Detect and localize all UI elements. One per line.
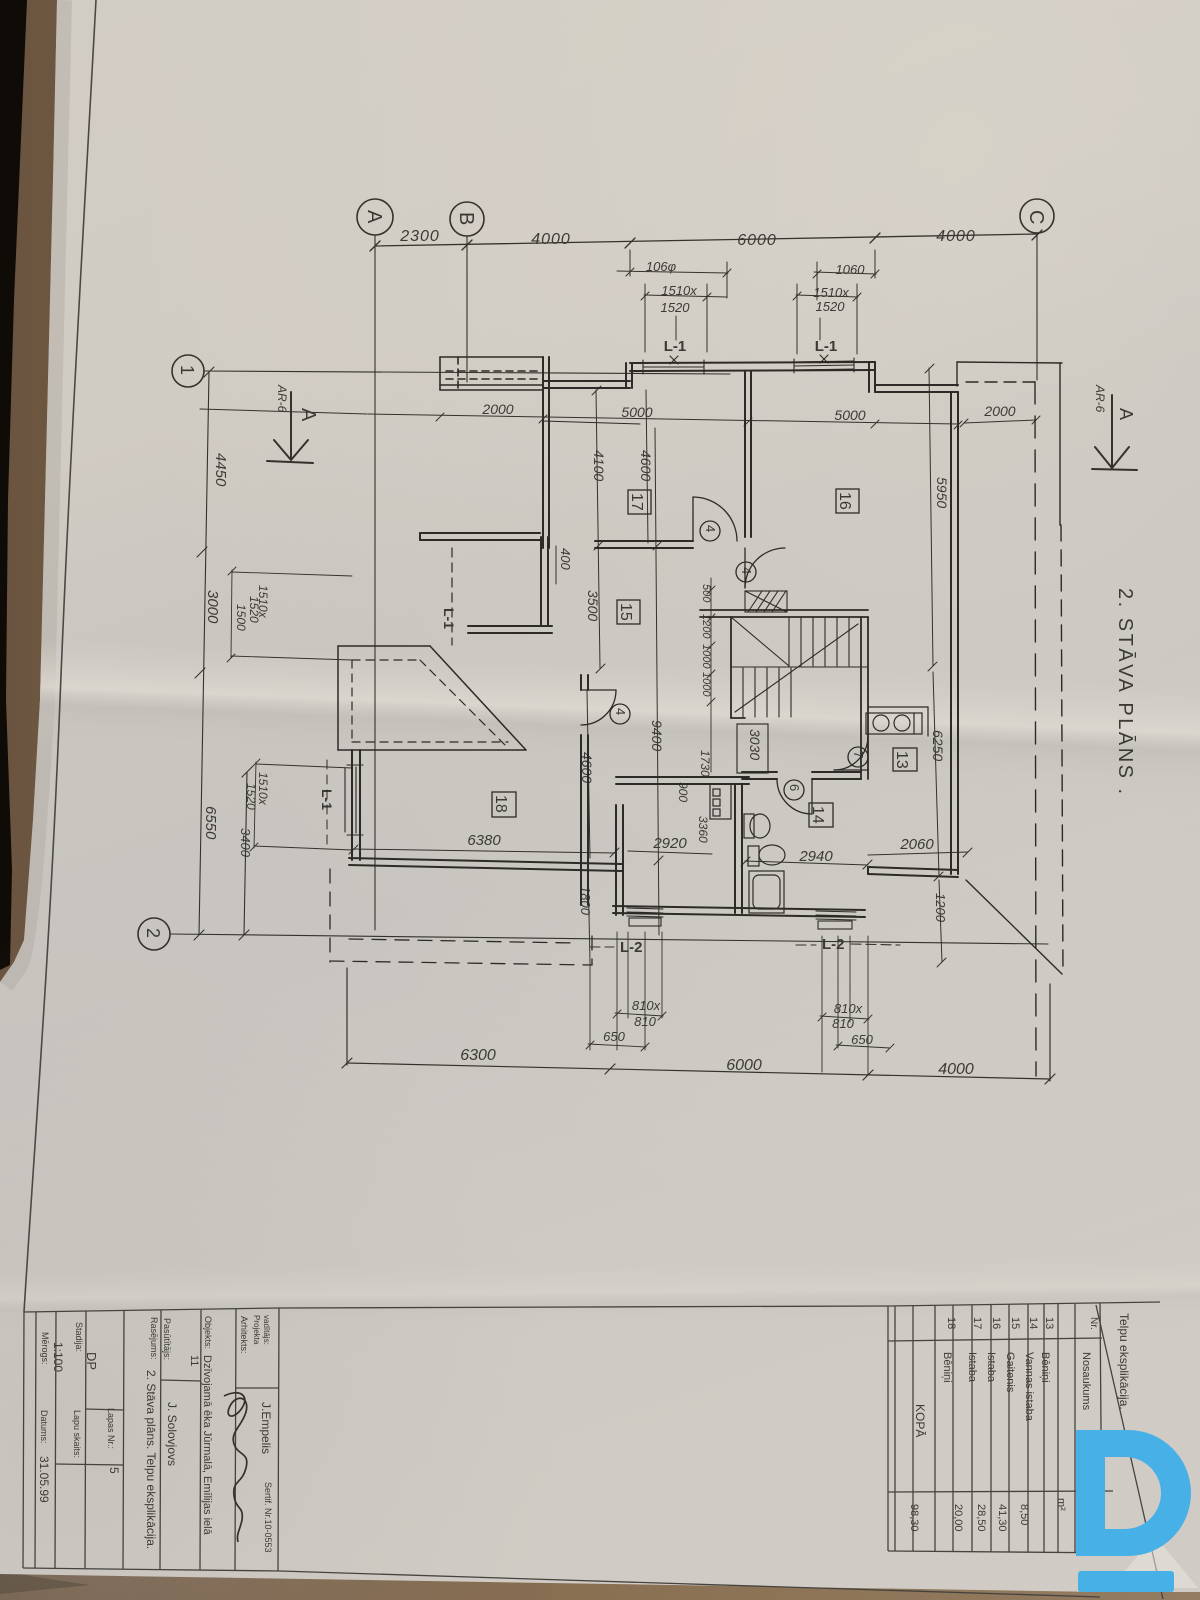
svg-text:Arhitekts:: Arhitekts: [239,1316,249,1354]
svg-text:Telpu eksplikācija.: Telpu eksplikācija. [1117,1313,1131,1410]
svg-text:L-1: L-1 [664,338,687,355]
svg-text:1520: 1520 [661,300,691,315]
svg-text:6000: 6000 [726,1057,762,1074]
svg-text:14: 14 [1027,1317,1039,1329]
svg-text:6: 6 [787,784,802,791]
svg-text:5950: 5950 [934,477,950,508]
svg-text:4000: 4000 [531,231,571,248]
svg-text:L-2: L-2 [822,936,845,953]
svg-text:Gaitenis: Gaitenis [1004,1352,1016,1393]
svg-text:vadītājs:: vadītājs: [262,1315,271,1345]
svg-text:2000: 2000 [481,401,513,417]
svg-text:4: 4 [613,708,628,715]
svg-text:Vannas istaba: Vannas istaba [1023,1352,1035,1422]
svg-text:1510x: 1510x [813,285,849,300]
svg-text:Istaba: Istaba [985,1352,997,1383]
svg-text:11: 11 [188,1355,200,1366]
svg-text:L-1: L-1 [441,608,457,629]
svg-text:6550: 6550 [202,806,219,840]
svg-text:4600: 4600 [638,450,654,481]
svg-text:Bēniņi: Bēniņi [941,1352,953,1383]
svg-text:1000: 1000 [700,672,712,697]
svg-text:1000: 1000 [700,644,712,669]
svg-text:810x: 810x [632,998,661,1013]
svg-text:15: 15 [617,603,634,621]
svg-text:650: 650 [851,1032,873,1047]
svg-text:900: 900 [676,782,690,802]
svg-text:6000: 6000 [737,232,777,249]
svg-text:L-1: L-1 [815,338,838,355]
svg-text:810: 810 [634,1014,656,1029]
svg-text:4000: 4000 [936,228,976,245]
svg-text:31.05.99: 31.05.99 [37,1456,51,1503]
svg-text:Bēniņi: Bēniņi [1039,1352,1051,1383]
svg-text:500: 500 [700,584,712,603]
svg-text:m²: m² [1055,1498,1067,1511]
svg-text:1500: 1500 [234,604,248,631]
svg-text:18: 18 [492,795,509,813]
svg-text:A: A [1116,408,1136,420]
svg-text:L-2: L-2 [620,939,643,956]
svg-text:400: 400 [558,548,573,570]
svg-text:AR-6: AR-6 [1093,384,1107,413]
svg-text:7: 7 [851,751,866,758]
svg-text:J.Empelis: J.Empelis [259,1402,273,1454]
svg-text:1520: 1520 [247,596,261,623]
svg-text:2060: 2060 [899,836,934,853]
svg-text:Pasūtītājs:: Pasūtītājs: [162,1318,172,1360]
svg-text:2300: 2300 [399,228,440,245]
svg-text:5000: 5000 [621,404,652,420]
svg-text:14: 14 [809,806,826,824]
svg-text:1520: 1520 [816,299,846,314]
svg-text:Nr.: Nr. [1088,1317,1099,1330]
svg-text:2000: 2000 [983,403,1015,419]
svg-text:B: B [455,212,477,225]
svg-text:16: 16 [990,1317,1002,1329]
svg-text:18: 18 [945,1317,957,1329]
svg-text:2. Stāva plāns. Telpu eksplikā: 2. Stāva plāns. Telpu eksplikācija. [144,1370,158,1549]
svg-text:106φ: 106φ [646,259,677,274]
svg-text:810x: 810x [834,1001,863,1016]
svg-text:17: 17 [628,493,645,511]
svg-text:Lapu skaits:: Lapu skaits: [72,1410,82,1458]
svg-text:Sertif. Nr.10-0553: Sertif. Nr.10-0553 [263,1482,273,1553]
svg-text:1730: 1730 [698,750,712,777]
svg-text:6250: 6250 [930,730,946,761]
svg-text:1:100: 1:100 [51,1342,65,1372]
svg-text:3500: 3500 [585,590,601,621]
svg-text:C: C [1025,210,1047,224]
svg-text:1200: 1200 [933,893,948,923]
svg-text:2940: 2940 [798,848,833,865]
svg-text:650: 650 [603,1029,625,1044]
svg-text:Lapas Nr.:: Lapas Nr.: [106,1408,116,1449]
svg-text:Istaba: Istaba [966,1352,978,1383]
svg-text:8,50: 8,50 [1018,1504,1030,1525]
svg-text:5000: 5000 [834,407,865,423]
svg-text:4100: 4100 [591,450,607,481]
svg-text:6380: 6380 [467,832,501,849]
svg-text:98,30: 98,30 [908,1504,920,1532]
svg-text:2: 2 [143,928,163,938]
svg-text:Stadija:: Stadija: [74,1322,84,1352]
svg-text:J. Solovjovs: J. Solovjovs [165,1402,179,1466]
svg-text:Mērogs:: Mērogs: [40,1332,50,1365]
svg-text:DP: DP [84,1352,99,1370]
svg-text:810: 810 [832,1016,854,1031]
svg-text:Nosaukums: Nosaukums [1080,1352,1092,1411]
svg-text:A: A [363,210,385,224]
svg-text:1: 1 [177,365,197,375]
svg-text:20,00: 20,00 [952,1504,964,1532]
svg-text:4: 4 [739,567,754,574]
svg-text:16: 16 [836,492,853,510]
svg-text:2920: 2920 [652,835,687,852]
svg-text:4: 4 [703,525,718,532]
svg-text:Rasējums:: Rasējums: [149,1317,159,1360]
svg-text:3360: 3360 [696,816,710,843]
svg-text:1060: 1060 [836,262,866,277]
svg-text:13: 13 [1043,1317,1055,1329]
svg-text:6300: 6300 [460,1047,496,1064]
svg-text:15: 15 [1009,1317,1021,1329]
svg-text:4000: 4000 [938,1061,974,1078]
svg-text:3000: 3000 [204,590,221,624]
svg-text:5: 5 [107,1467,121,1474]
svg-text:Objekts:: Objekts: [203,1316,213,1349]
svg-text:4450: 4450 [212,453,229,487]
svg-text:1510x: 1510x [661,283,697,298]
svg-text:28,50: 28,50 [975,1504,987,1532]
svg-text:3400: 3400 [238,828,253,858]
svg-text:Projekta: Projekta [252,1315,261,1345]
svg-text:41,30: 41,30 [996,1504,1008,1532]
svg-text:Datums:: Datums: [39,1410,49,1444]
svg-text:1520: 1520 [244,783,258,810]
svg-text:A: A [297,408,319,422]
svg-text:Dzīvojamā ēka Jūrmalā, Emīlija: Dzīvojamā ēka Jūrmalā, Emīlijas ielā [201,1355,213,1536]
svg-text:3030: 3030 [747,729,763,760]
svg-text:13: 13 [893,751,910,769]
svg-text:AR-6: AR-6 [275,384,289,413]
svg-text:KOPĀ: KOPĀ [913,1404,927,1437]
svg-text:17: 17 [971,1317,983,1329]
svg-text:2. STĀVA PLĀNS .: 2. STĀVA PLĀNS . [1114,588,1137,797]
svg-text:9400: 9400 [649,720,665,751]
